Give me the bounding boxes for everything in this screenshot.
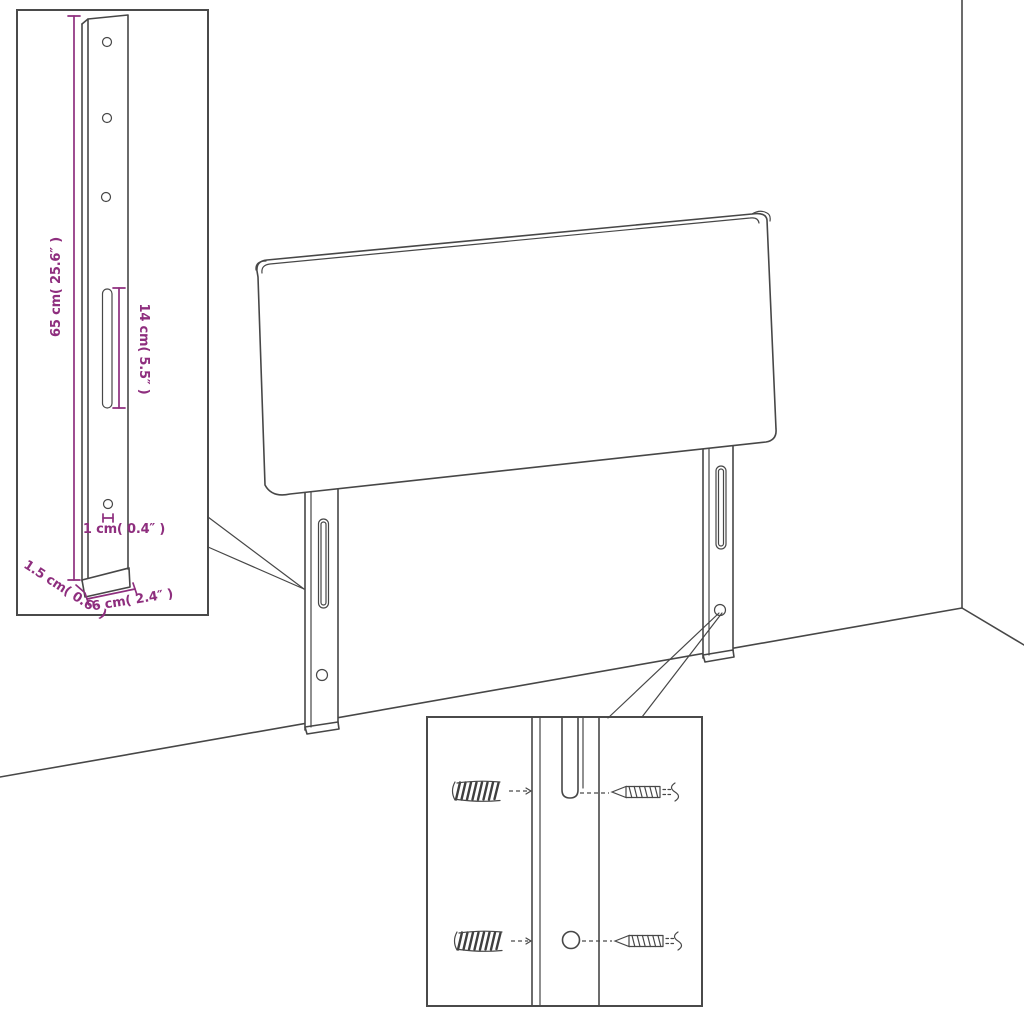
dimension-label-height: 65 cm( 25.6″ ) (49, 237, 64, 337)
headboard-panel (256, 211, 776, 495)
headboard-outline (257, 214, 776, 495)
dimension-label-hole-diameter: 1 cm( 0.4″ ) (83, 522, 165, 537)
mounting-inset-frame (427, 717, 702, 1006)
callout-lines-leg-detail (208, 517, 304, 589)
left-leg (305, 466, 339, 734)
right-leg (703, 424, 734, 662)
dimension-label-slot-length: 14 cm( 5.5″ ) (136, 303, 151, 394)
mounting-detail-inset (427, 717, 702, 1006)
diagram-canvas: 65 cm( 25.6″ ) 14 cm( 5.5″ ) 1 cm( 0.4″ … (0, 0, 1024, 1024)
floor-line-right (962, 608, 1024, 645)
leg-detail-inset: 65 cm( 25.6″ ) 14 cm( 5.5″ ) 1 cm( 0.4″ … (17, 10, 208, 622)
